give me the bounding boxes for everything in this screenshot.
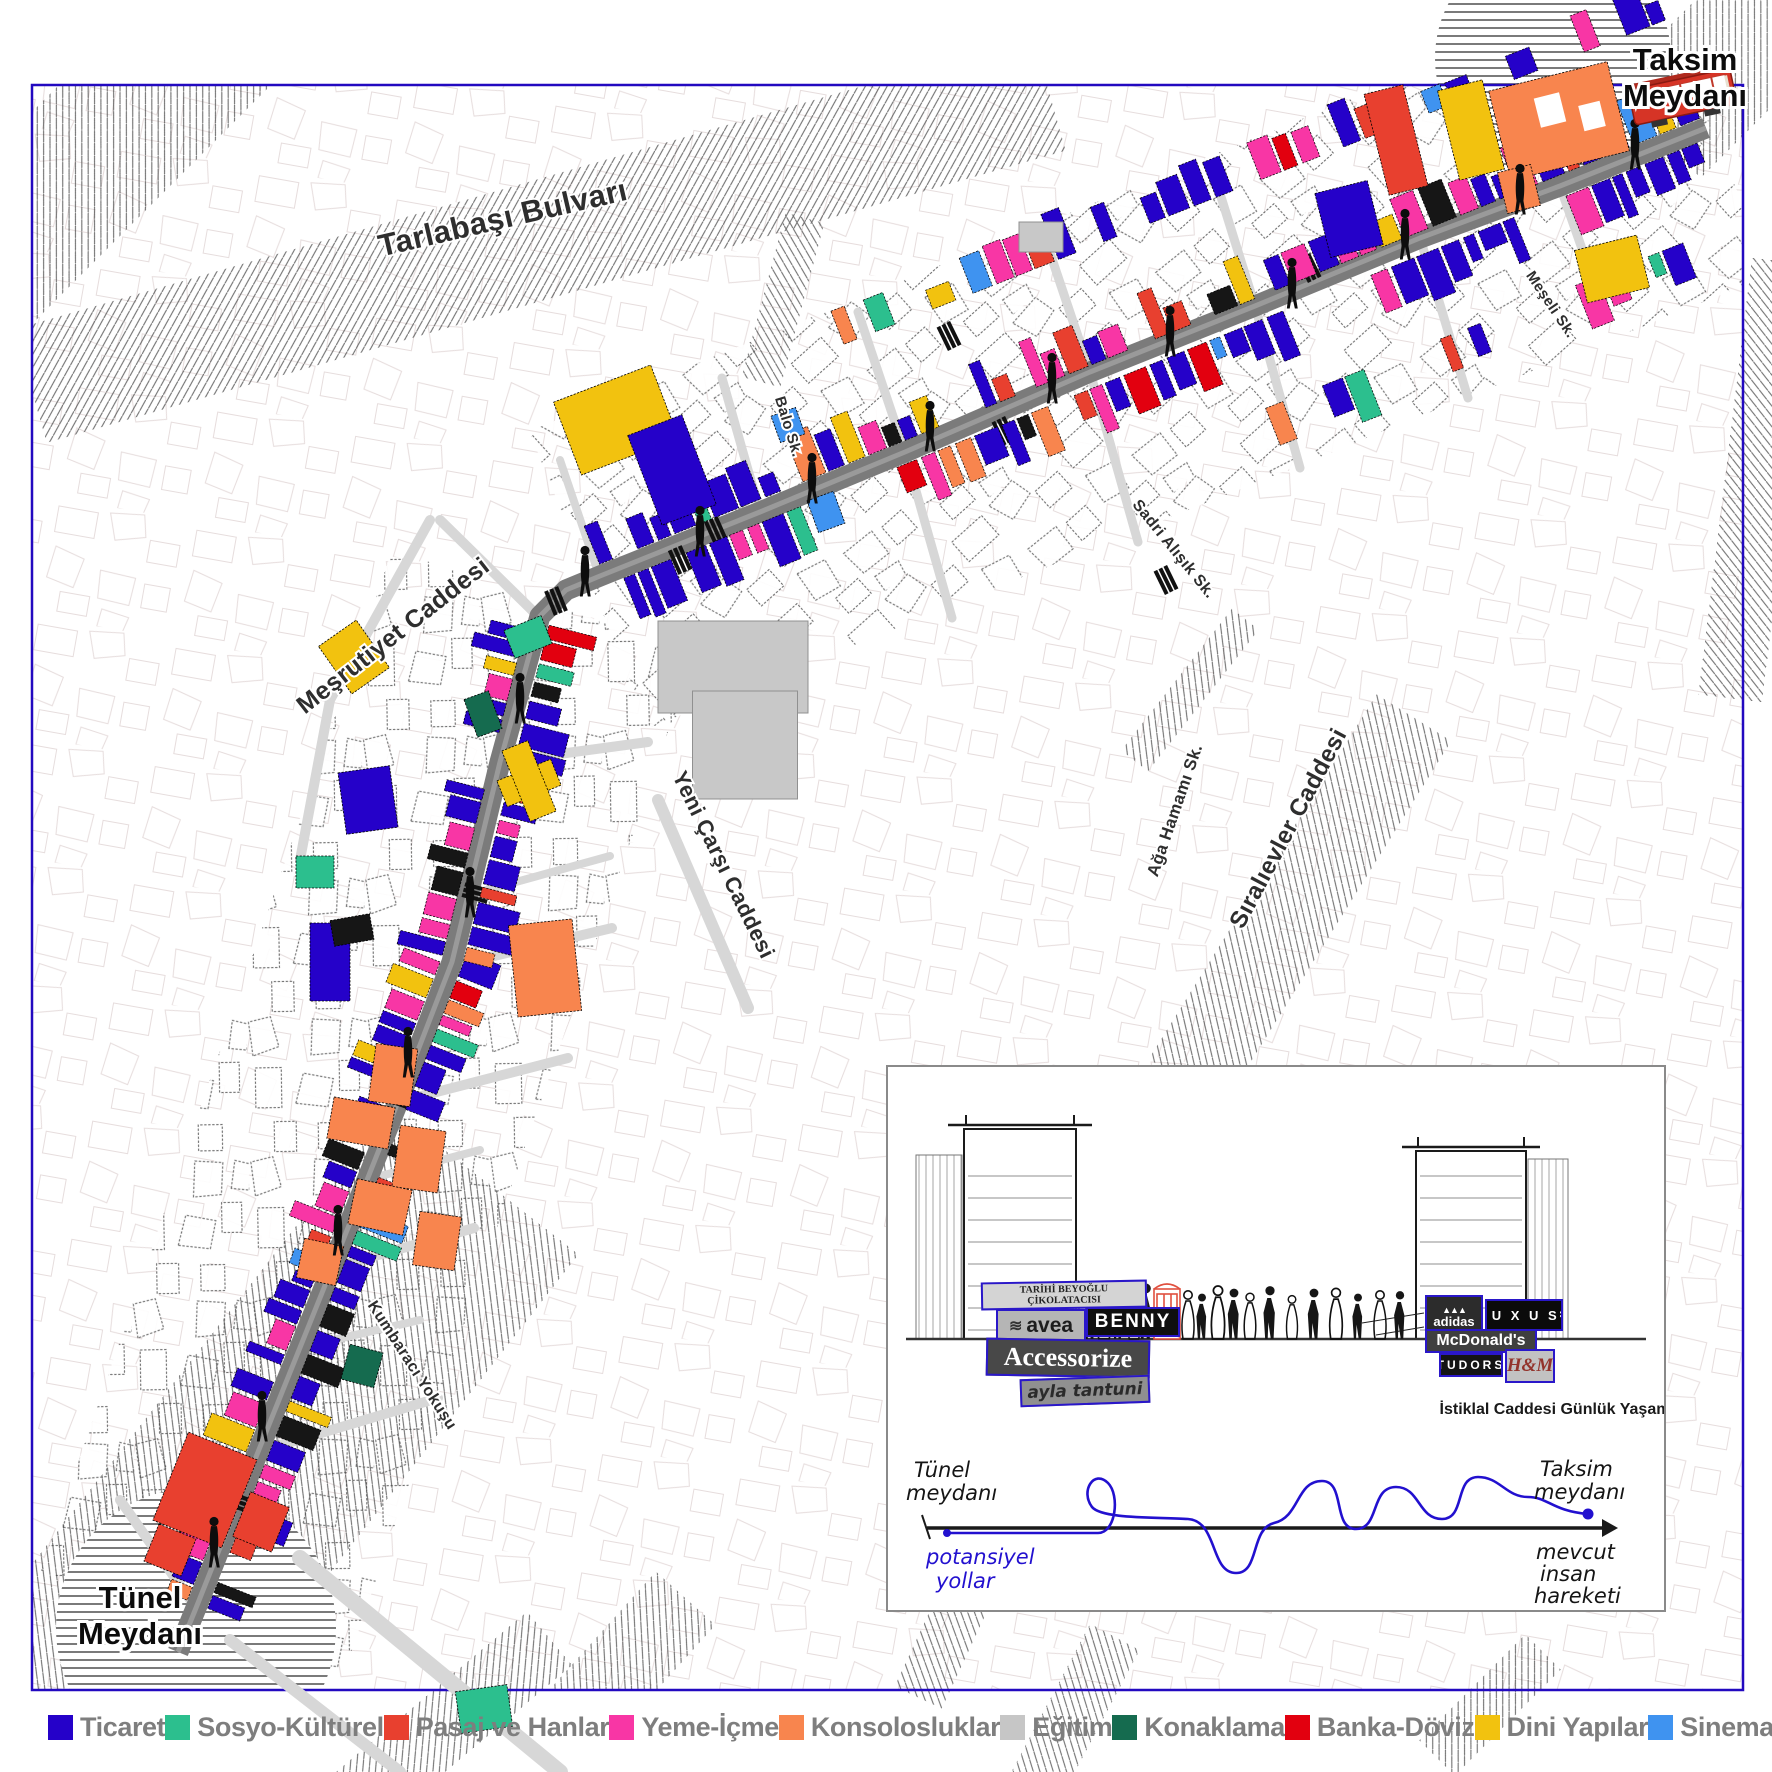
scissors-icon: ✂ <box>1560 1307 1563 1323</box>
tunel-square-label2: Meydanı <box>78 1616 202 1651</box>
landmark-building <box>392 1125 446 1193</box>
diagram-tunel-label: Tünel <box>914 1458 970 1482</box>
inset-caption: İstiklal Caddesi Günlük Yaşam <box>1440 1400 1664 1418</box>
legend-swatch <box>1000 1715 1025 1740</box>
shop-sign-label: L U X U S <box>1485 1308 1560 1323</box>
legend-swatch <box>1475 1715 1500 1740</box>
shop-sign-label: H&M <box>1507 1355 1553 1377</box>
avea-logo-glyph: ≋ <box>1009 1316 1022 1336</box>
landmark-building <box>508 919 581 1017</box>
tunel-square-label: Tünel <box>99 1580 182 1615</box>
legend-item: Konsolosluklar <box>779 1712 1000 1743</box>
shop-sign-tarihi-beyoglu: TARİHİ BEYOĞLU ÇİKOLATACISI <box>981 1280 1147 1311</box>
diagram-existing-label3: hareketi <box>1534 1584 1621 1608</box>
istiklal-landuse-map: Tarlabaşı Bulvarı Meşrutiyet Caddesi Yen… <box>0 0 1772 1772</box>
diagram-potential-label: potansiyel <box>925 1545 1035 1569</box>
legend-swatch <box>609 1715 634 1740</box>
legend-swatch <box>165 1715 190 1740</box>
legend-label: Sinema <box>1680 1712 1772 1743</box>
diagram-existing-label: mevcut <box>1536 1540 1616 1564</box>
legend-swatch <box>1285 1715 1310 1740</box>
landmark-building <box>412 1211 461 1270</box>
diagram-taksim-label2: meydanı <box>1534 1480 1625 1504</box>
section-inset-panel: İstiklal Caddesi Günlük Yaşam Tünel meyd… <box>886 1065 1666 1612</box>
legend-item: Eğitim <box>1000 1712 1112 1743</box>
landmark-building <box>338 766 398 835</box>
landmark-building <box>693 691 798 799</box>
legend-label: Konsolosluklar <box>811 1712 1000 1743</box>
legend-item: Dini Yapılar <box>1475 1712 1649 1743</box>
legend-label: Pasaj ve Hanlar <box>416 1712 610 1743</box>
diagram-existing-label2: insan <box>1540 1562 1596 1586</box>
diagram-taksim-label: Taksim <box>1540 1457 1613 1481</box>
landmark-building <box>296 856 334 888</box>
legend-label: Yeme-İçme <box>641 1712 779 1743</box>
landuse-legend: TicaretSosyo-KültürelPasaj ve HanlarYeme… <box>48 1712 1732 1743</box>
shop-sign-label: Accessorize <box>1003 1342 1132 1374</box>
shop-sign-line: ÇİKOLATACISI <box>1027 1294 1101 1306</box>
legend-label: Banka-Döviz <box>1317 1712 1475 1743</box>
legend-label: Eğitim <box>1032 1712 1112 1743</box>
shop-sign-ayla-tantuni: ayla tantuni <box>1020 1375 1151 1408</box>
shop-sign-luxus: L U X U S ✂ <box>1485 1299 1563 1331</box>
legend-swatch <box>1112 1715 1137 1740</box>
shop-sign-label: adidas <box>1433 1315 1474 1328</box>
legend-swatch <box>48 1715 73 1740</box>
legend-swatch <box>1648 1715 1673 1740</box>
shop-sign-benny: BENNY <box>1086 1307 1180 1337</box>
axis-arrowhead <box>1602 1519 1618 1537</box>
legend-label: Dini Yapılar <box>1507 1712 1649 1743</box>
potential-paths-squiggle <box>947 1477 1588 1573</box>
legend-item: Pasaj ve Hanlar <box>384 1712 610 1743</box>
shop-sign-accessorize: Accessorize <box>986 1338 1151 1379</box>
legend-item: Banka-Döviz <box>1285 1712 1475 1743</box>
legend-item: Yeme-İçme <box>609 1712 779 1743</box>
legend-label: Sosyo-Kültürel <box>197 1712 383 1743</box>
shop-sign-label: BENNY <box>1095 1311 1172 1333</box>
legend-swatch <box>779 1715 804 1740</box>
movement-diagram: Tünel meydanı potansiyel yollar Taksim m… <box>906 1457 1625 1608</box>
shop-sign-label: TUDORS <box>1439 1358 1503 1372</box>
legend-item: Sosyo-Kültürel <box>165 1712 383 1743</box>
legend-item: Konaklama <box>1112 1712 1284 1743</box>
diagram-potential-label2: yollar <box>935 1569 996 1593</box>
landmark-building <box>1019 222 1063 252</box>
legend-item: Ticaret <box>48 1712 165 1743</box>
diagram-tunel-label2: meydanı <box>906 1481 997 1505</box>
legend-swatch <box>384 1715 409 1740</box>
legend-label: Ticaret <box>80 1712 165 1743</box>
squiggle-end-dot <box>1583 1509 1594 1520</box>
taksim-square-label: Taksim <box>1633 42 1738 77</box>
shop-sign-tudors: TUDORS <box>1439 1353 1503 1377</box>
shop-sign-label: McDonald's <box>1436 1332 1525 1350</box>
squiggle-start-dot <box>943 1529 951 1537</box>
legend-item: Sinema <box>1648 1712 1772 1743</box>
shop-sign-hm: H&M <box>1505 1349 1555 1383</box>
legend-label: Konaklama <box>1144 1712 1284 1743</box>
shop-sign-label: ayla tantuni <box>1027 1379 1143 1403</box>
shop-sign-label: avea <box>1026 1314 1073 1338</box>
taksim-square-label2: Meydanı <box>1623 78 1747 113</box>
